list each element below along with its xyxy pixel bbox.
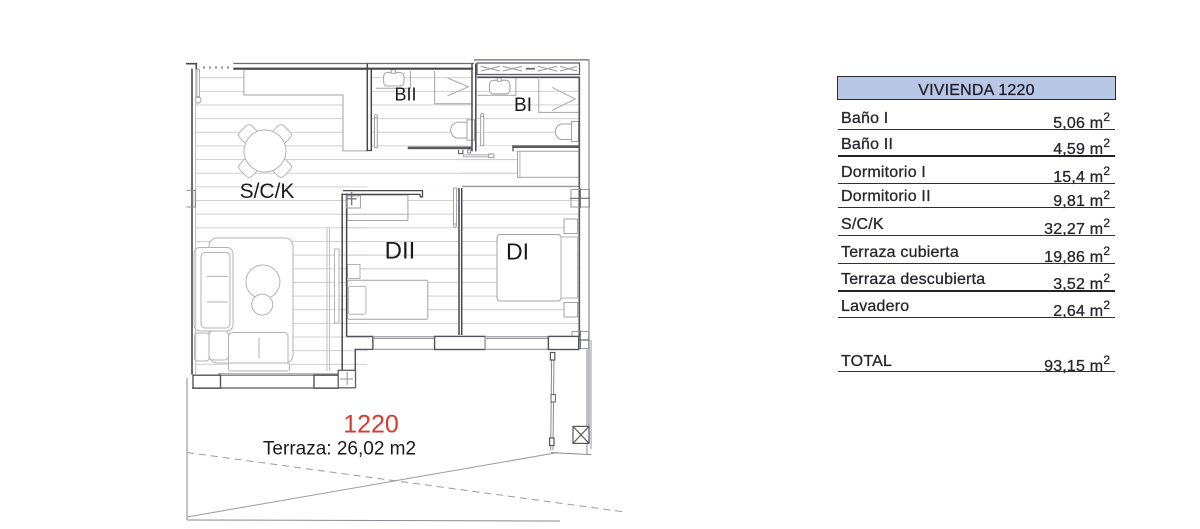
svg-text:BII: BII [394, 85, 416, 105]
svg-text:1220: 1220 [343, 411, 399, 439]
svg-text:Terraza: 26,02 m2: Terraza: 26,02 m2 [263, 439, 416, 460]
